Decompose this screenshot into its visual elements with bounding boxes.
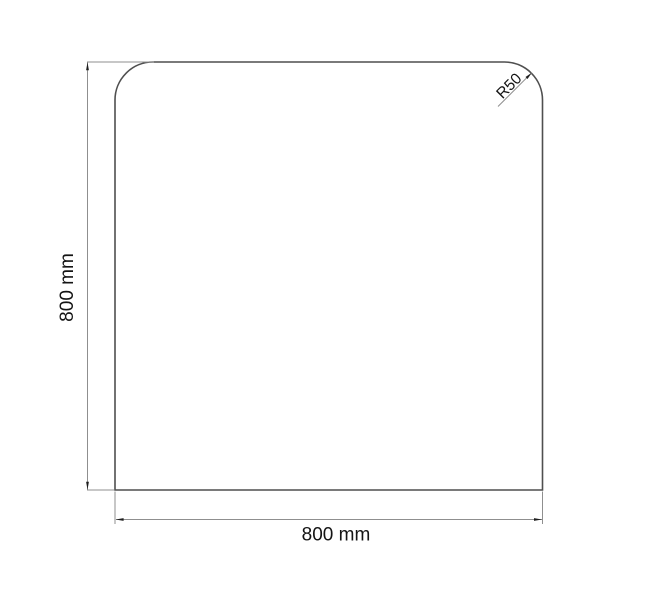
height-dim-arrow-top [86, 62, 89, 70]
panel-outline [115, 62, 543, 490]
drawing-svg: 800 mm 800 mm R50 [0, 0, 649, 600]
height-dim-label: 800 mm [57, 253, 78, 322]
width-dim-arrow-left [116, 518, 124, 521]
width-dim-arrow-right [534, 518, 542, 521]
width-dim-label: 800 mm [302, 525, 371, 546]
technical-drawing: 800 mm 800 mm R50 [0, 0, 649, 600]
height-dim-arrow-bottom [86, 482, 89, 490]
